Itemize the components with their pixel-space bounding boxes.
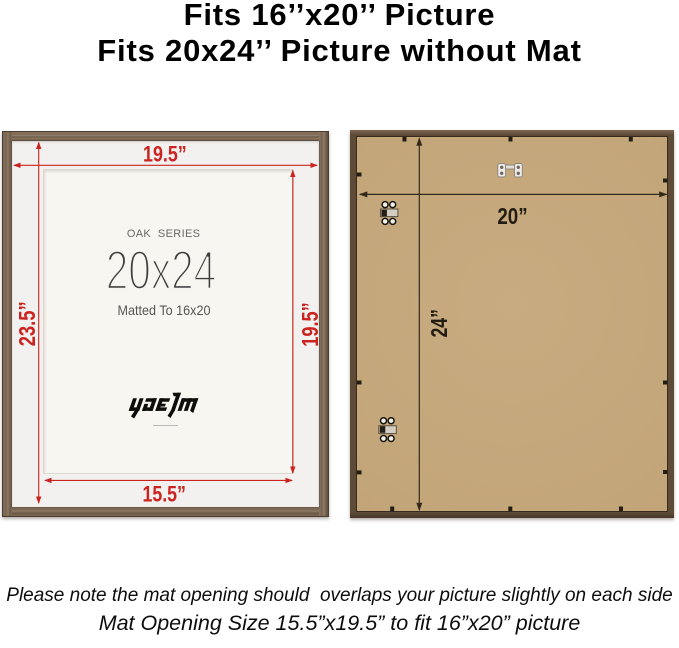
- svg-text:15.5”: 15.5”: [142, 482, 186, 507]
- svg-text:23.5”: 23.5”: [14, 301, 40, 346]
- svg-text:19.5”: 19.5”: [143, 142, 187, 167]
- svg-text:20”: 20”: [497, 203, 527, 229]
- svg-text:19.5”: 19.5”: [297, 302, 323, 347]
- svg-text:24”: 24”: [425, 309, 451, 338]
